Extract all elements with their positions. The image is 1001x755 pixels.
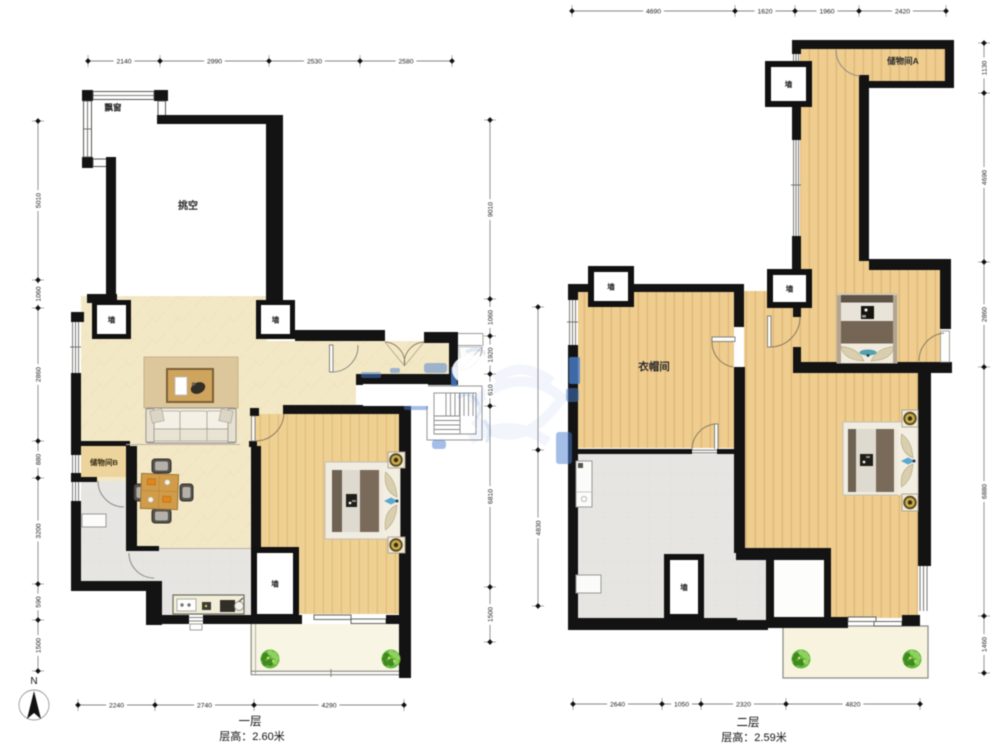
svg-text:2740: 2740 bbox=[197, 703, 212, 710]
svg-text:1460: 1460 bbox=[981, 637, 988, 652]
svg-text:1620: 1620 bbox=[757, 9, 772, 16]
svg-text:层高：2.60米: 层高：2.60米 bbox=[219, 729, 284, 743]
svg-text:1050: 1050 bbox=[674, 702, 689, 709]
svg-text:储物间B: 储物间B bbox=[90, 457, 118, 467]
svg-text:4820: 4820 bbox=[845, 702, 860, 709]
svg-text:1060: 1060 bbox=[35, 286, 42, 301]
svg-text:墙: 墙 bbox=[785, 79, 793, 89]
svg-text:层高：2.59米: 层高：2.59米 bbox=[721, 730, 786, 744]
svg-text:4290: 4290 bbox=[321, 703, 336, 710]
svg-text:2580: 2580 bbox=[398, 59, 413, 66]
svg-text:墙: 墙 bbox=[271, 578, 279, 588]
svg-text:2420: 2420 bbox=[895, 9, 910, 16]
svg-text:2860: 2860 bbox=[981, 307, 988, 322]
svg-text:墙: 墙 bbox=[786, 283, 794, 293]
svg-text:2320: 2320 bbox=[736, 702, 751, 709]
svg-text:N: N bbox=[30, 676, 37, 687]
svg-text:墙: 墙 bbox=[272, 314, 280, 324]
svg-text:挑空: 挑空 bbox=[178, 199, 198, 212]
svg-text:飘窗: 飘窗 bbox=[104, 103, 122, 113]
svg-text:二层: 二层 bbox=[737, 716, 760, 729]
svg-text:1960: 1960 bbox=[819, 9, 834, 16]
svg-text:2530: 2530 bbox=[307, 59, 322, 66]
svg-text:610: 610 bbox=[487, 384, 494, 396]
svg-text:4830: 4830 bbox=[535, 520, 542, 535]
svg-text:4690: 4690 bbox=[646, 9, 661, 16]
svg-text:2140: 2140 bbox=[116, 59, 131, 66]
svg-text:880: 880 bbox=[35, 454, 42, 466]
svg-text:2640: 2640 bbox=[610, 702, 625, 709]
svg-text:墙: 墙 bbox=[108, 314, 116, 324]
svg-text:1500: 1500 bbox=[35, 638, 42, 653]
svg-text:墙: 墙 bbox=[680, 582, 688, 592]
svg-text:1130: 1130 bbox=[981, 60, 988, 75]
svg-text:一层: 一层 bbox=[239, 715, 262, 728]
svg-text:1920: 1920 bbox=[487, 347, 494, 362]
svg-text:6810: 6810 bbox=[487, 489, 494, 504]
svg-text:2860: 2860 bbox=[35, 367, 42, 382]
svg-text:590: 590 bbox=[35, 596, 42, 608]
svg-text:6880: 6880 bbox=[981, 484, 988, 499]
svg-text:4690: 4690 bbox=[981, 170, 988, 185]
svg-text:2990: 2990 bbox=[207, 59, 222, 66]
svg-text:2240: 2240 bbox=[109, 703, 124, 710]
svg-text:1500: 1500 bbox=[487, 607, 494, 622]
svg-text:储物间A: 储物间A bbox=[886, 56, 919, 66]
svg-text:衣帽间: 衣帽间 bbox=[638, 360, 670, 373]
svg-text:5010: 5010 bbox=[35, 193, 42, 208]
svg-text:1060: 1060 bbox=[487, 310, 494, 325]
svg-text:墙: 墙 bbox=[607, 281, 615, 291]
svg-text:9010: 9010 bbox=[487, 202, 494, 217]
svg-text:3200: 3200 bbox=[35, 523, 42, 538]
